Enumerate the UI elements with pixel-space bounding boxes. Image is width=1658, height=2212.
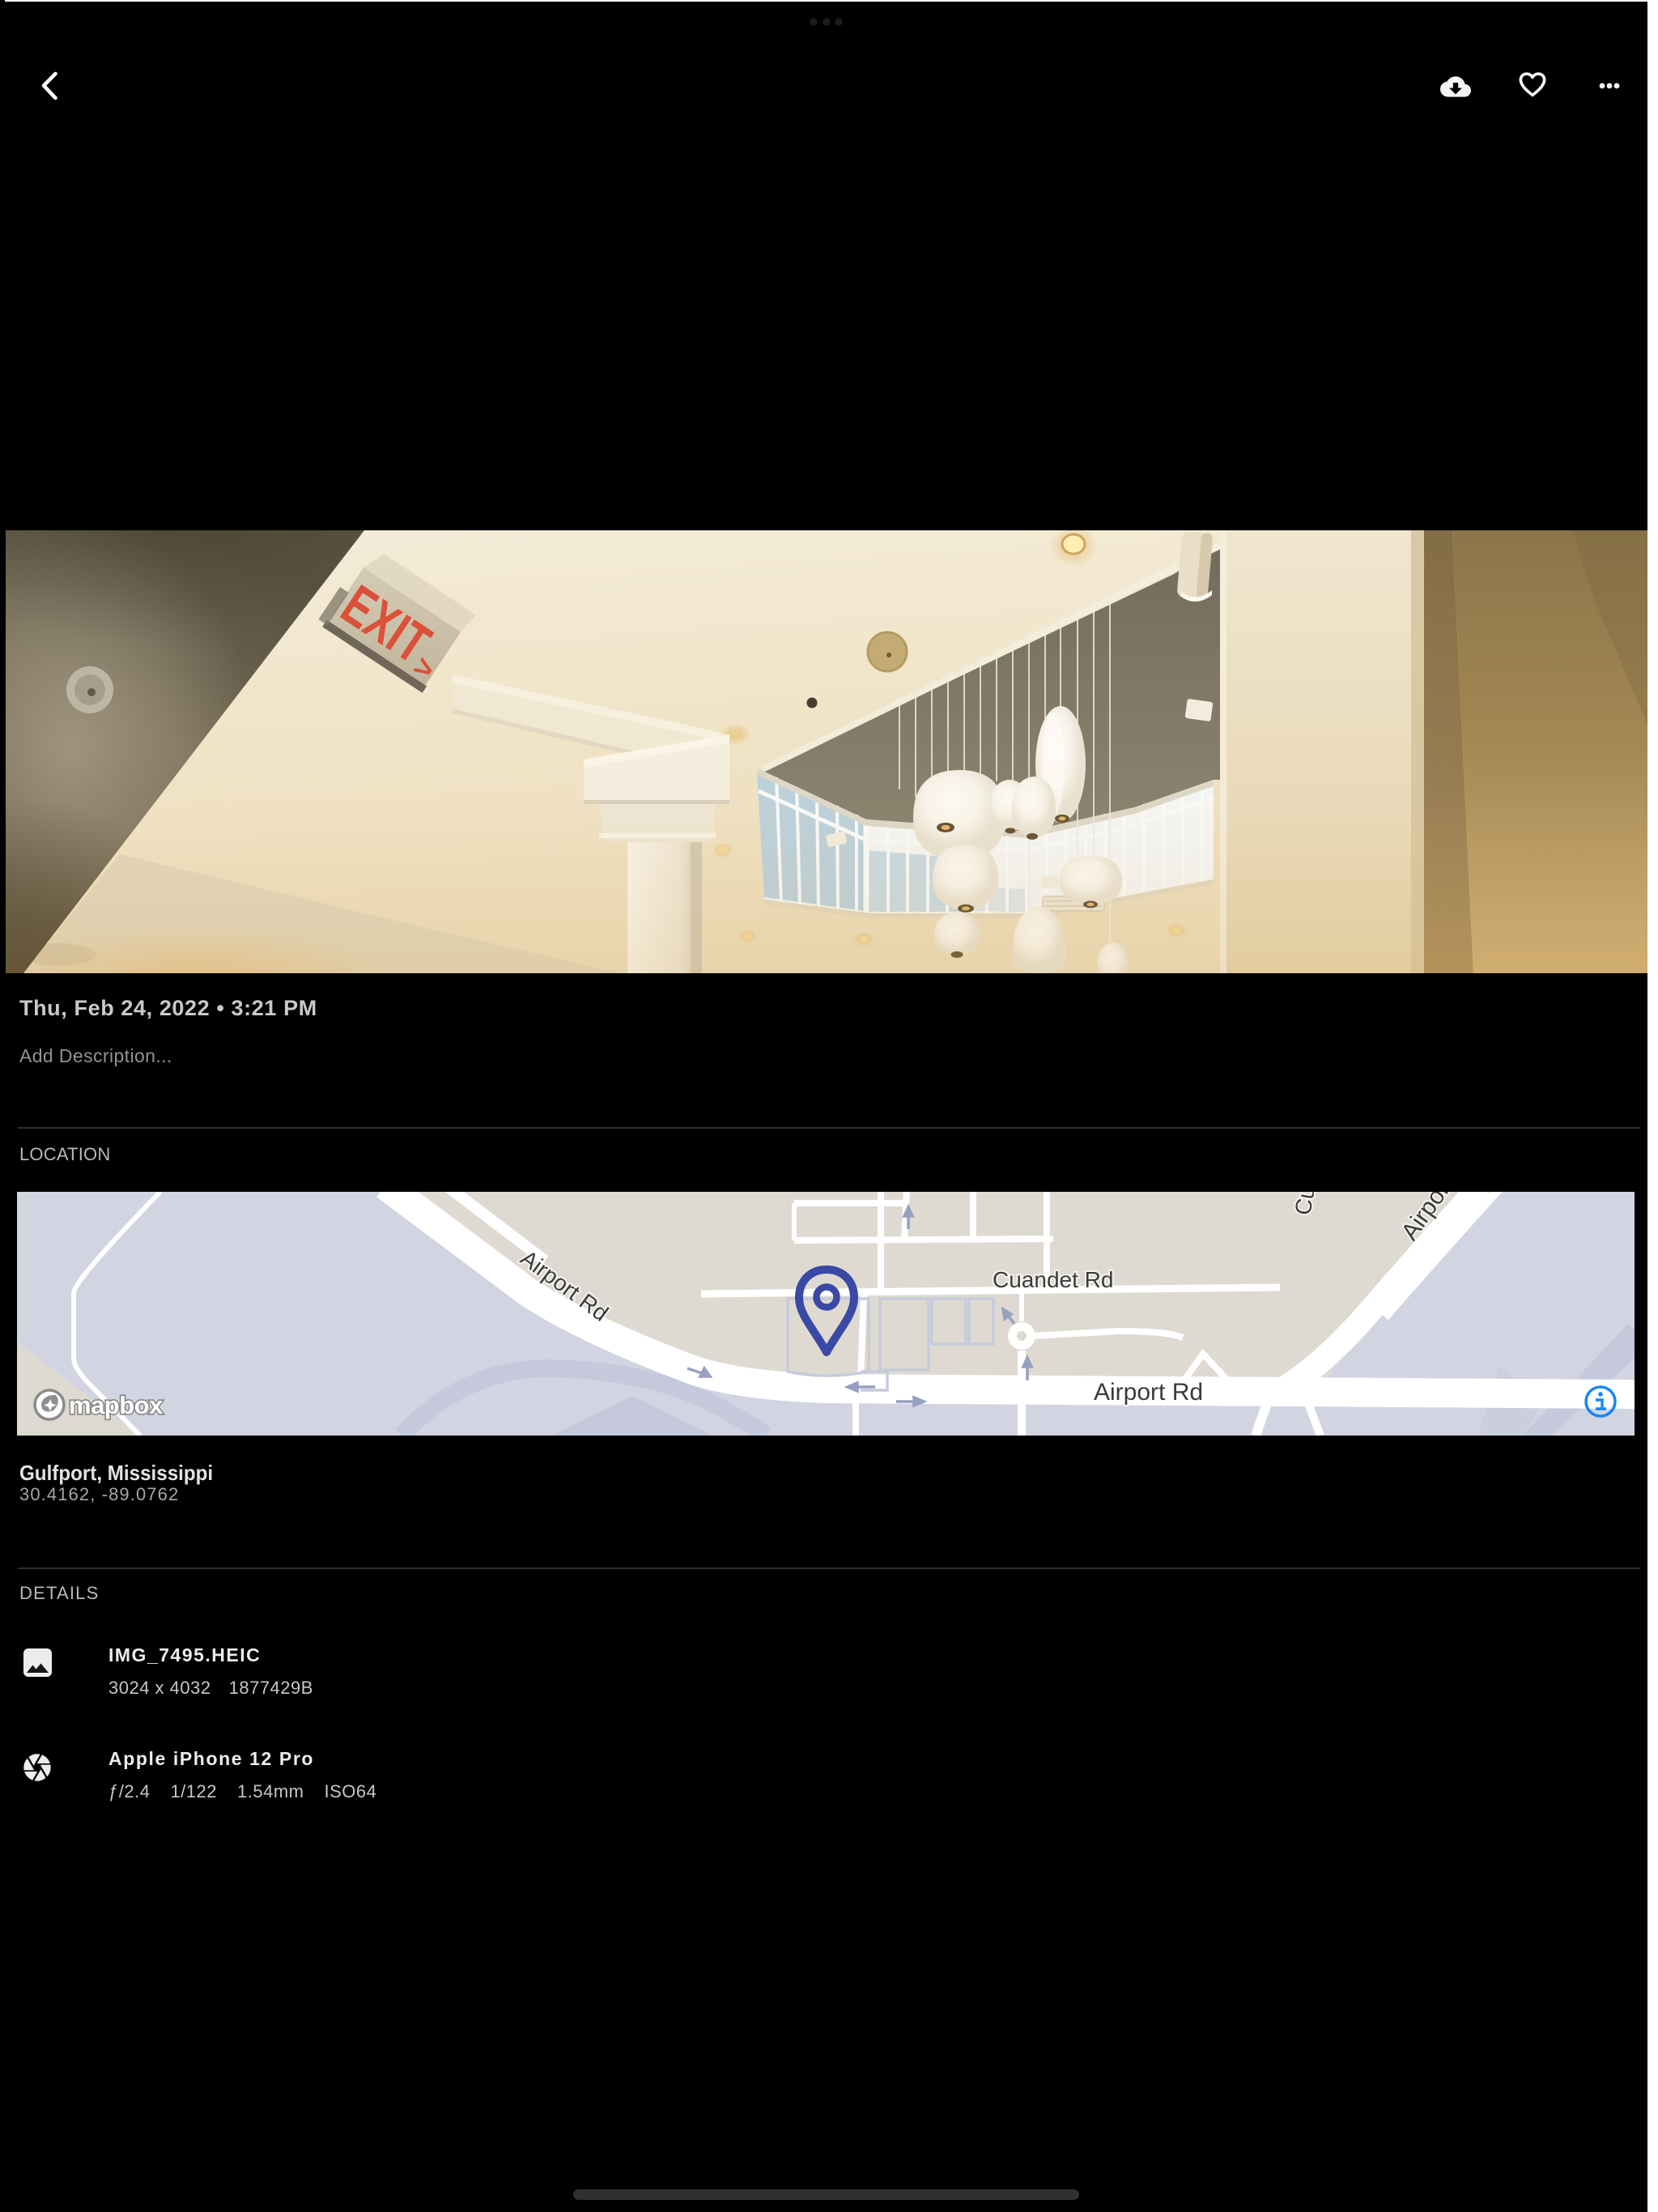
svg-text:mapbox: mapbox <box>69 1391 164 1419</box>
svg-text:Cuandet Rd: Cuandet Rd <box>993 1267 1113 1292</box>
svg-text:Cu: Cu <box>1290 1192 1320 1217</box>
svg-text:Airport Rd: Airport Rd <box>1094 1379 1203 1406</box>
